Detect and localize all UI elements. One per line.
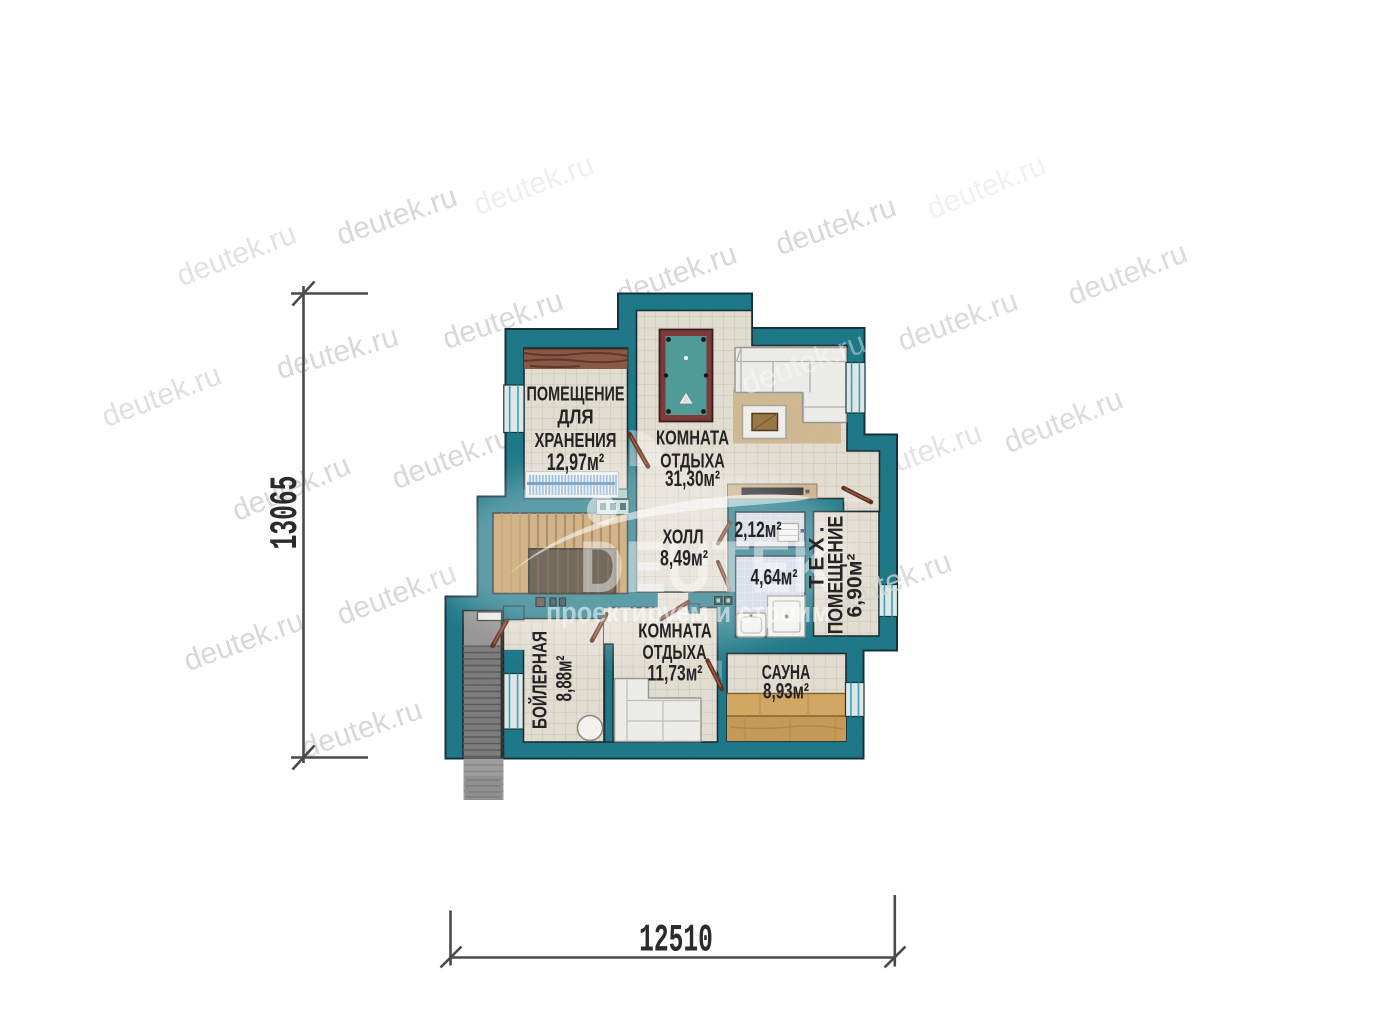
svg-text:БОЙЛЕРНАЯ: БОЙЛЕРНАЯ: [527, 631, 551, 729]
svg-text:КОМНАТА: КОМНАТА: [656, 426, 729, 449]
svg-text:ХРАНЕНИЯ: ХРАНЕНИЯ: [535, 429, 617, 452]
svg-text:КОМНАТА: КОМНАТА: [638, 619, 712, 642]
svg-text:8,49м²: 8,49м²: [660, 547, 708, 571]
svg-text:31,30м²: 31,30м²: [665, 467, 720, 491]
svg-text:12,97м²: 12,97м²: [547, 450, 605, 476]
svg-text:DEUTEK: DEUTEK: [579, 527, 837, 608]
svg-text:ОТДЫХА: ОТДЫХА: [643, 641, 707, 664]
svg-text:13065: 13065: [264, 476, 308, 550]
svg-text:8,88м²: 8,88м²: [553, 656, 577, 702]
svg-text:ДЛЯ: ДЛЯ: [557, 405, 593, 428]
svg-text:11,73м²: 11,73м²: [648, 662, 703, 686]
svg-text:6,90м²: 6,90м²: [844, 554, 867, 618]
svg-text:4,64м²: 4,64м²: [750, 566, 797, 590]
svg-text:ПОМЕЩЕНИЕ: ПОМЕЩЕНИЕ: [526, 382, 624, 405]
svg-text:2,12м²: 2,12м²: [734, 519, 781, 543]
svg-text:ХОЛЛ: ХОЛЛ: [663, 525, 704, 548]
svg-text:8,93м²: 8,93м²: [763, 680, 809, 704]
svg-text:12510: 12510: [639, 918, 713, 962]
